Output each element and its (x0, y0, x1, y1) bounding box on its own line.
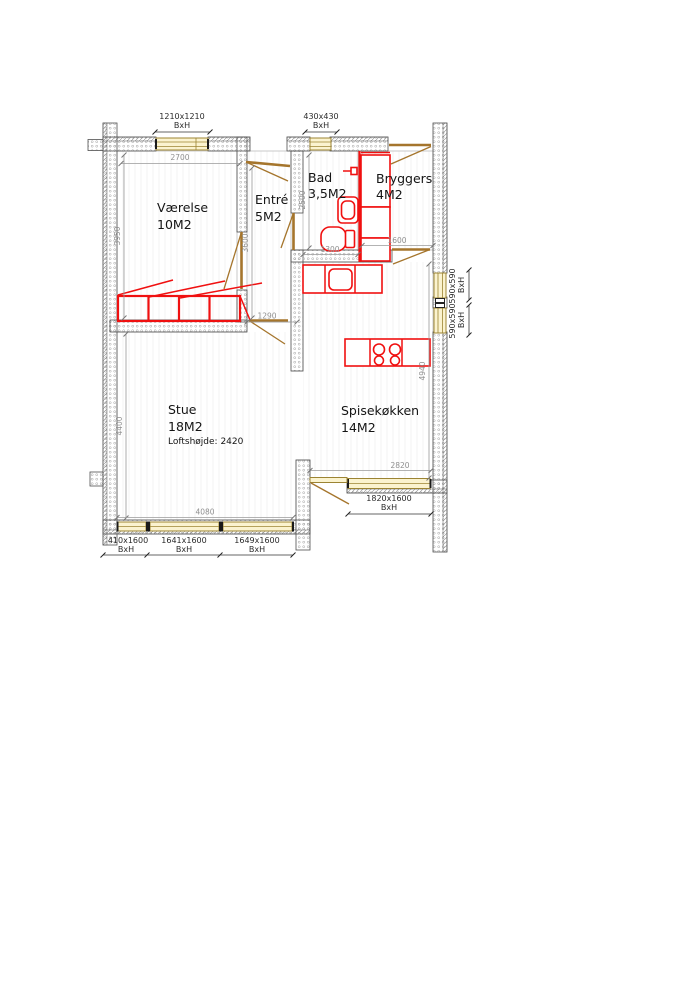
kitchen-counter-sink (303, 265, 382, 293)
door-koekken-terrace (310, 478, 349, 505)
window-430 (310, 138, 331, 150)
window-590-upper (434, 273, 446, 298)
window-mullion-block-1 (436, 299, 445, 303)
room-note-ceiling-height: Loftshøjde: 2420 (168, 437, 244, 447)
label-window-1820-sub: BxH (381, 503, 397, 512)
dim-4940: 4940 (418, 361, 427, 380)
label-window-590-lower: 590x590 (448, 303, 457, 338)
room-label-bad: Bad (308, 170, 332, 185)
label-window-410: 410x1600 (108, 536, 148, 545)
room-label-entre: Entré (255, 192, 289, 207)
room-area-vaerelse: 10M2 (157, 217, 192, 232)
label-window-1210-sub: BxH (174, 121, 190, 130)
label-window-1820: 1820x1600 (366, 494, 411, 503)
wall-koekken-left (291, 250, 303, 371)
room-area-entre: 5M2 (255, 209, 282, 224)
wall-vaerelse-entre-upper (237, 137, 247, 232)
label-window-430: 430x430 (303, 112, 338, 121)
window-590-lower (434, 308, 446, 333)
window-1820 (347, 479, 432, 489)
dim-4080: 4080 (195, 508, 214, 517)
dim-1600: 1600 (387, 236, 406, 245)
dim-3950: 3950 (113, 226, 122, 245)
window-1210 (155, 138, 209, 150)
room-label-stue: Stue (168, 402, 197, 417)
dim-1290: 1290 (257, 312, 276, 321)
room-area-spisekoekken: 14M2 (341, 420, 376, 435)
floor-plan-drawing: 2700 3950 3600 2500 1300 1600 1290 4400 (0, 0, 695, 983)
dim-1300: 1300 (320, 245, 339, 254)
room-area-bryggers: 4M2 (376, 187, 403, 202)
label-window-1649-sub: BxH (249, 545, 265, 554)
label-window-590-upper-sub: BxH (457, 277, 466, 293)
label-window-590-upper: 590x590 (448, 268, 457, 303)
label-window-1641-sub: BxH (176, 545, 192, 554)
dim-2500: 2500 (298, 190, 307, 209)
wall-top-left-arm (88, 140, 103, 151)
dim-2700: 2700 (170, 153, 189, 162)
floor-plan-canvas: 2700 3950 3600 2500 1300 1600 1290 4400 (0, 0, 695, 983)
room-area-bad: 3,5M2 (308, 186, 347, 201)
door-bryggers-koekken (392, 250, 430, 265)
room-label-bryggers: Bryggers (376, 171, 432, 186)
label-window-410-sub: BxH (118, 545, 134, 554)
room-label-vaerelse: Værelse (157, 200, 208, 215)
dim-2820: 2820 (390, 461, 409, 470)
wall-middle-stub (296, 460, 310, 550)
room-area-stue: 18M2 (168, 419, 203, 434)
window-mullion-block-2 (436, 304, 445, 308)
label-window-1210: 1210x1210 (159, 112, 204, 121)
room-label-spisekoekken: Spisekøkken (341, 403, 419, 418)
wall-left-stub (90, 472, 103, 486)
label-window-1641: 1641x1600 (161, 536, 206, 545)
dim-4400: 4400 (115, 416, 124, 435)
label-window-430-sub: BxH (313, 121, 329, 130)
dim-3600: 3600 (241, 233, 250, 252)
wall-vaerelse-entre-lower (237, 290, 247, 322)
window-row-stue (117, 522, 295, 532)
label-window-590-lower-sub: BxH (457, 312, 466, 328)
label-window-1649: 1649x1600 (234, 536, 279, 545)
